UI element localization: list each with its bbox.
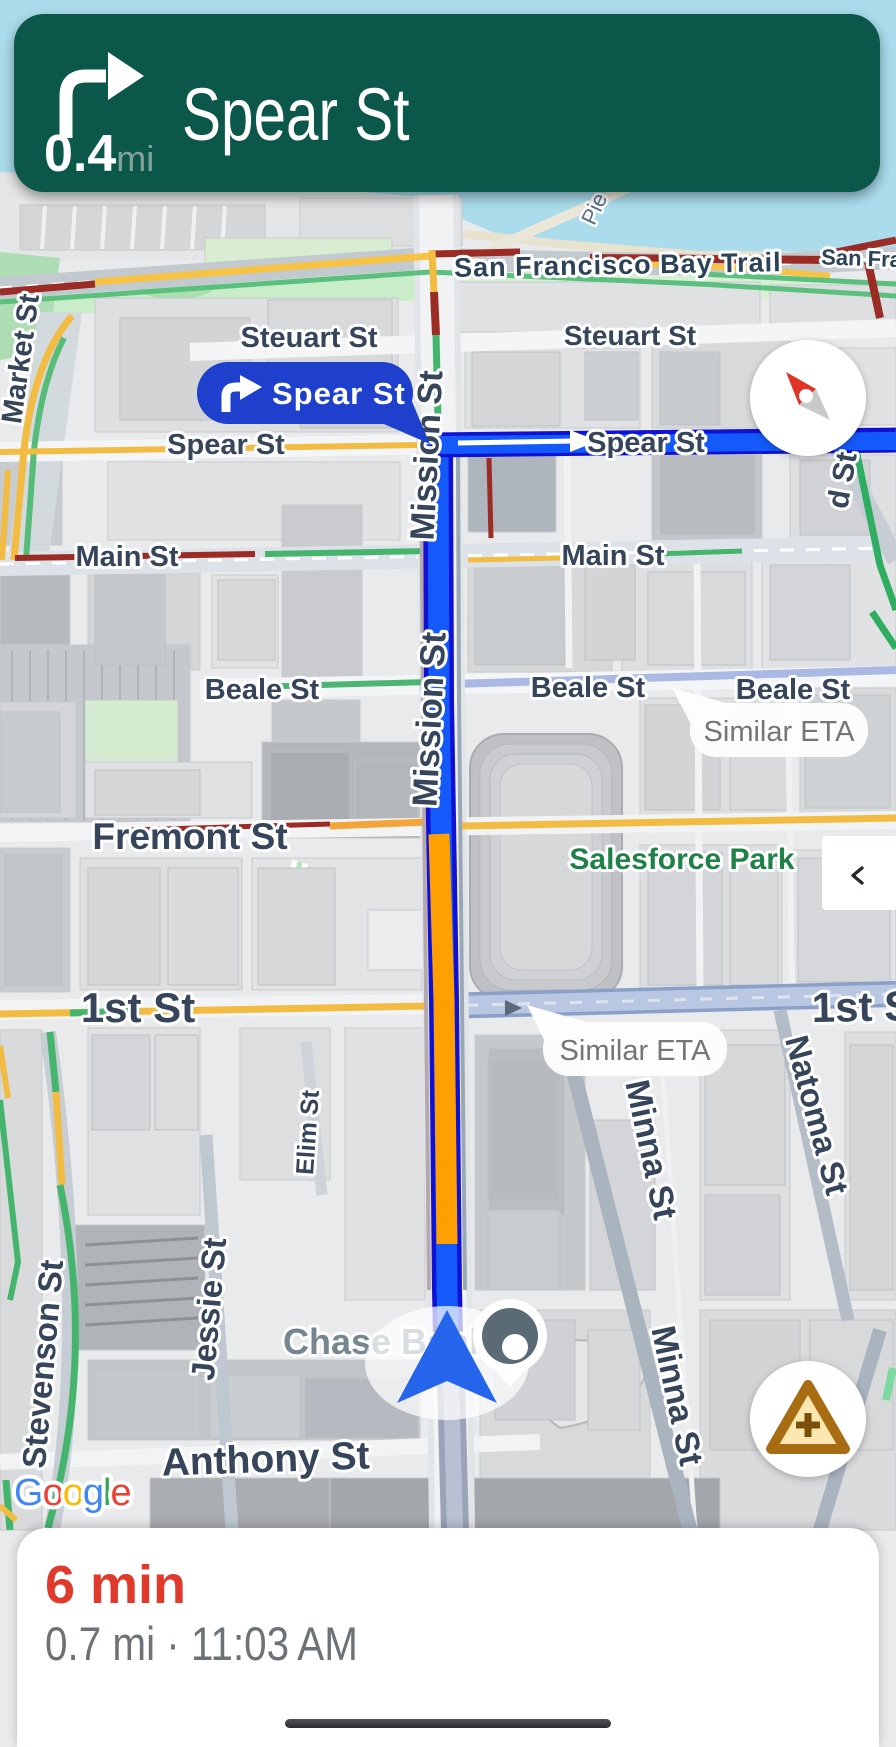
svg-text:Main St: Main St — [561, 540, 664, 572]
svg-text:Steuart St: Steuart St — [564, 320, 696, 351]
svg-text:Google: Google — [14, 1472, 131, 1514]
svg-text:Beale St: Beale St — [531, 672, 646, 704]
svg-text:Anthony St: Anthony St — [161, 1434, 370, 1484]
svg-text:1st St: 1st St — [81, 984, 195, 1031]
svg-text:1st S: 1st S — [811, 982, 896, 1031]
svg-text:Beale St: Beale St — [736, 674, 851, 706]
svg-text:Beale St: Beale St — [205, 674, 320, 706]
svg-text:Spear St: Spear St — [272, 376, 406, 411]
svg-text:Elim St: Elim St — [291, 1089, 325, 1176]
svg-text:Main St: Main St — [75, 541, 178, 573]
svg-text:Similar ETA: Similar ETA — [560, 1035, 712, 1067]
svg-text:San Fran: San Fran — [821, 244, 896, 272]
svg-text:Spear St: Spear St — [587, 427, 705, 459]
svg-text:San Francisco Bay Trail: San Francisco Bay Trail — [454, 247, 782, 283]
svg-text:Spear St: Spear St — [167, 429, 285, 461]
svg-text:Fremont St: Fremont St — [92, 816, 287, 857]
svg-text:Steuart St: Steuart St — [241, 322, 378, 354]
svg-text:Similar ETA: Similar ETA — [704, 716, 856, 748]
svg-text:Salesforce Park: Salesforce Park — [569, 843, 794, 876]
